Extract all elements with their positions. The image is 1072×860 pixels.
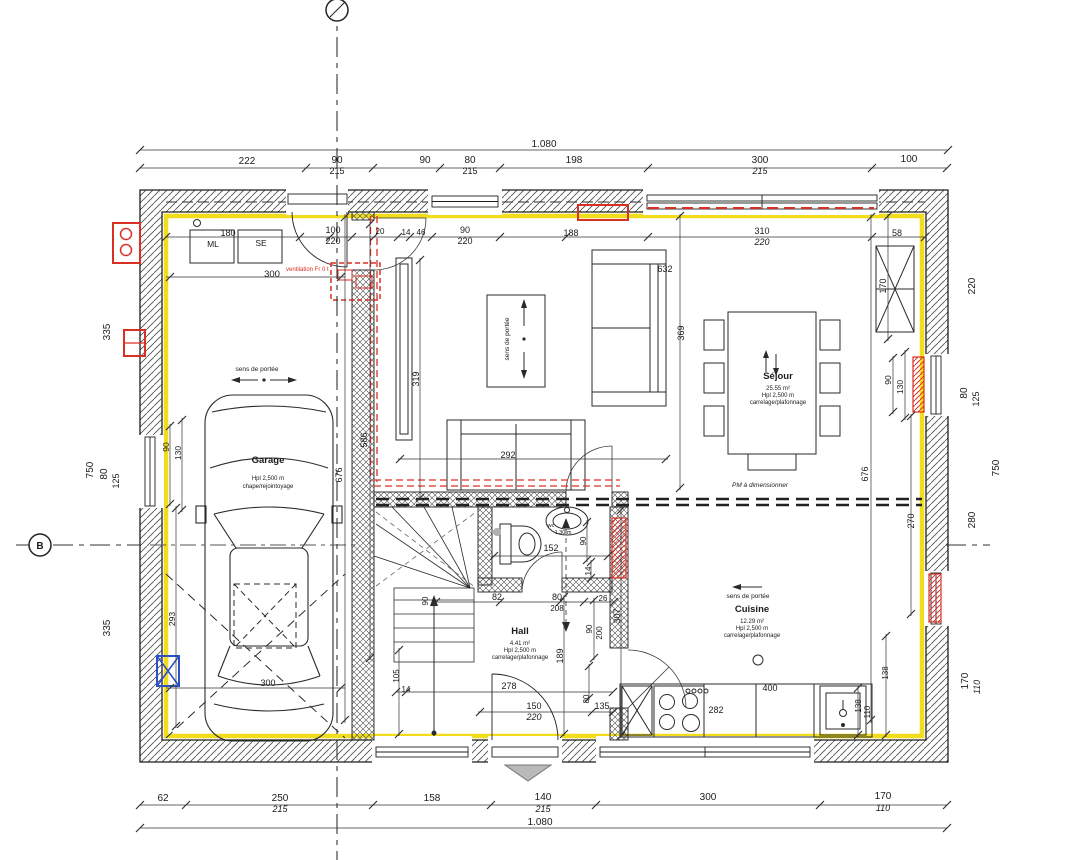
label-d90s: 90: [421, 596, 430, 605]
label-d5: 198: [566, 155, 583, 166]
label-d307: 307: [612, 608, 622, 623]
label-area: 25.55 m²: [766, 386, 790, 392]
label-ceiling: Hpl 2,500 m: [762, 393, 794, 399]
label-d3: 90: [419, 155, 431, 166]
label-d90: 90: [883, 375, 893, 385]
label-d2: 90: [331, 155, 343, 166]
label-d6: 170: [875, 791, 892, 802]
label-d2: 80: [959, 387, 970, 399]
label-d4s: 215: [462, 166, 477, 176]
label-section_marker: B: [36, 541, 43, 552]
label-d5: 300: [700, 792, 717, 803]
label-finish: carrelage/plafonnage: [724, 633, 781, 639]
label-d2s: 215: [271, 804, 288, 814]
label-d310s: 220: [753, 237, 769, 247]
tv-sideboard: [396, 258, 412, 440]
label-beam_note: PM à dimensionner: [732, 482, 789, 489]
label-d282: 282: [708, 705, 723, 715]
label-d1: 222: [239, 156, 256, 167]
label-d200: 200: [595, 626, 604, 640]
label-span_direction: sens de portée: [726, 593, 769, 600]
label-name: wc: [547, 523, 555, 529]
label-d2: 250: [272, 793, 289, 804]
sofa-two-seat: [592, 250, 666, 406]
label-d130: 130: [895, 380, 905, 394]
label-d6s: 110: [876, 803, 890, 813]
entry-step: [505, 765, 551, 781]
label-span_direction: sens de portée: [504, 317, 511, 360]
label-d90: 90: [161, 442, 171, 452]
label-total: 750: [991, 459, 1002, 476]
label-d14w: 14: [584, 566, 593, 575]
label-d369: 369: [676, 325, 686, 340]
label-d4: 80: [464, 155, 476, 166]
interior-walls: [352, 212, 628, 740]
toilet-bowl: [511, 526, 541, 562]
label-area: 12.29 m²: [740, 619, 764, 625]
label-d400: 400: [762, 683, 777, 693]
label-d80: 80: [582, 694, 591, 703]
label-d80: 80: [552, 592, 562, 602]
label-d3: 158: [424, 793, 441, 804]
label-d150s: 220: [525, 712, 541, 722]
label-d26: 26: [599, 594, 608, 603]
label-d150: 150: [526, 701, 541, 711]
label-d90: 90: [585, 624, 594, 633]
label-d278: 278: [501, 681, 516, 691]
label-name: Séjour: [763, 371, 793, 382]
label-d2: 80: [99, 468, 110, 480]
toilet-tank: [500, 524, 511, 564]
label-d4: 140: [535, 792, 552, 803]
label-ceiling: Hpl 2,500 m: [736, 626, 768, 632]
label-d170: 170: [878, 278, 888, 293]
label-total: 1.080: [531, 139, 556, 150]
label-d188: 188: [563, 228, 578, 238]
label-d270: 270: [906, 513, 916, 528]
label-d586: 586: [359, 432, 369, 447]
label-d90w: 90: [579, 536, 588, 545]
label-d20: 20: [376, 227, 385, 236]
label-total: 1.080: [527, 817, 552, 828]
label-d319: 319: [411, 371, 421, 386]
label-d90: 90: [460, 225, 470, 235]
label-d135: 135: [594, 701, 609, 711]
label-d180: 180: [220, 228, 235, 238]
label-d3: 280: [967, 511, 978, 528]
red-service-layer: [113, 205, 941, 622]
label-w300: 300: [264, 269, 280, 280]
label-d189: 189: [555, 648, 565, 663]
light-point: [753, 655, 763, 665]
label-dryer: SE: [255, 238, 267, 248]
label-d130: 130: [173, 446, 183, 460]
label-d82: 82: [492, 592, 502, 602]
label-d152: 152: [543, 543, 558, 553]
label-d2s: 215: [329, 166, 344, 176]
floor-plan-drawing: 1.08022290215908021519830021510062250215…: [0, 0, 1072, 860]
label-d6: 300: [752, 155, 769, 166]
label-name: Garage: [252, 455, 285, 466]
label-d14b: 14: [402, 685, 411, 694]
label-finish: carrelage/plafonnage: [492, 655, 549, 661]
label-d14: 14: [402, 228, 411, 237]
label-finish: carrelage/plafonnage: [750, 400, 807, 406]
label-area: 1.30 m: [555, 530, 572, 536]
label-name: Cuisine: [735, 604, 769, 615]
label-d1: 62: [157, 793, 169, 804]
label-ceiling: Hpl 2,500 m: [504, 648, 536, 654]
label-finish: chape/rejointoyage: [243, 484, 294, 490]
label-d46: 46: [417, 228, 426, 237]
label-d110: 110: [863, 705, 872, 718]
label-area: 4.41 m²: [510, 641, 530, 647]
car: [196, 395, 342, 741]
label-ceiling: Hpl 2,500 m: [252, 476, 284, 482]
label-d1: 220: [967, 277, 978, 294]
label-d90s: 220: [457, 236, 472, 246]
label-d310: 310: [754, 226, 769, 236]
label-washer: ML: [207, 239, 219, 249]
label-d4s: 110: [972, 680, 982, 694]
label-total: 750: [85, 461, 96, 478]
sejour-furniture: [396, 246, 914, 490]
label-d100s: 220: [325, 236, 340, 246]
wc-fixtures: [493, 507, 588, 564]
label-d6s: 215: [751, 166, 768, 176]
label-d1: 335: [102, 323, 113, 340]
label-w300b: 300: [260, 678, 275, 688]
label-span_direction: sens de portée: [235, 366, 278, 373]
label-name: Hall: [511, 626, 528, 637]
cooktop: [654, 686, 708, 737]
label-d2s: 125: [971, 391, 981, 406]
label-vent_note: ventilation Fr 0 t: [286, 267, 329, 273]
label-d3: 335: [102, 619, 113, 636]
label-d7: 100: [901, 154, 918, 165]
label-d100: 100: [325, 225, 340, 235]
label-d4: 170: [960, 672, 971, 689]
label-d2s: 125: [111, 473, 121, 488]
label-d4s: 215: [534, 804, 551, 814]
floor-plan-page: 1.08022290215908021519830021510062250215…: [0, 0, 1072, 860]
label-d676: 676: [334, 467, 344, 482]
label-d58: 58: [892, 228, 902, 238]
interior-doors: [374, 218, 686, 708]
label-d105: 105: [392, 669, 401, 683]
label-d632: 632: [657, 264, 672, 274]
label-d676: 676: [860, 466, 870, 481]
label-d138a: 138: [854, 699, 863, 713]
label-d292: 292: [500, 450, 515, 460]
label-d293: 293: [167, 612, 177, 626]
label-d208: 208: [550, 604, 564, 613]
label-d138b: 138: [881, 666, 890, 680]
coffee-table: [487, 295, 545, 387]
